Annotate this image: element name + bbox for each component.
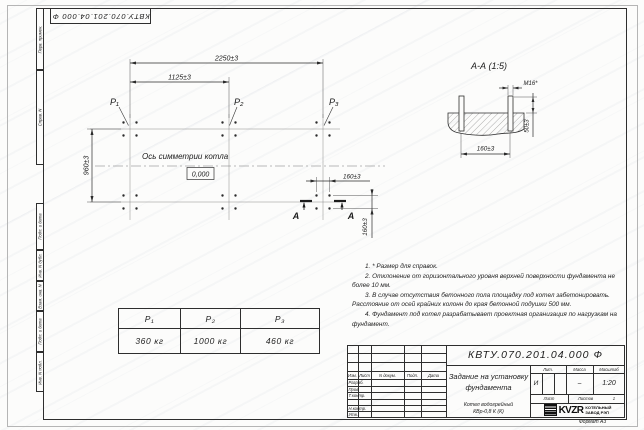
load-table-value-p1: 360 кг <box>119 329 181 353</box>
tb-org-cell: KVZR КОТЕЛЬНЫЙ ЗАВОД РЭП <box>530 403 625 417</box>
tb-sheets-cell: Листов 1 <box>568 394 625 403</box>
tb-col-data: Дата <box>421 371 446 379</box>
load-point-p2-label: P₂ <box>234 97 244 107</box>
tb-col-podp: Подп. <box>404 371 421 379</box>
technical-notes: 1. * Размер для справок. 2. Отклонение о… <box>352 262 629 329</box>
org-name: КОТЕЛЬНЫЙ ЗАВОД РЭП <box>585 405 611 415</box>
tb-col-izm: Изм. <box>347 371 358 379</box>
kvzr-logo-icon <box>544 404 557 416</box>
dim-bolt-spacing-h: 160±3 <box>343 174 361 181</box>
dimension-arrows <box>91 62 374 215</box>
bolt-thread-callout: М16* <box>524 81 539 87</box>
kvzr-logo-text: KVZR <box>559 405 584 416</box>
tb-col-list: Лист <box>358 371 371 379</box>
anchor-bolt-left <box>459 96 464 131</box>
tb-product-line1: Котел водогрейный <box>464 402 513 409</box>
tb-row-tkontr: Т.контр. <box>347 392 371 399</box>
anchor-bolt-dots <box>122 121 330 209</box>
tb-scale-header: Масштаб <box>593 365 625 373</box>
load-table-header-p1: P₁ <box>119 309 181 329</box>
tb-line <box>542 373 543 394</box>
load-table-value-p3: 460 кг <box>241 329 319 353</box>
tb-line <box>371 345 372 418</box>
tb-sheets-label: Листов <box>578 396 593 401</box>
elevation-value: 0,000 <box>192 172 210 179</box>
load-table-value-p2: 1000 кг <box>181 329 241 353</box>
section-aa-view: А-А (1:5) М16* 50±3 160±3 <box>448 61 538 158</box>
load-table: P₁ P₂ P₃ 360 кг 1000 кг 460 кг <box>118 308 320 354</box>
tb-row-razrab: Разраб. <box>347 379 371 386</box>
tb-sheets-value: 1 <box>613 396 615 401</box>
dimension-lines <box>92 63 372 238</box>
tb-sheet-label: Лист <box>530 394 568 403</box>
tb-line <box>347 362 446 363</box>
dim-depth: 960±3 <box>84 156 91 176</box>
note-1: 1. * Размер для справок. <box>352 262 629 272</box>
tb-scale-value: 1:20 <box>593 373 625 394</box>
section-letter-right: А <box>347 211 355 221</box>
tb-lit-value: И <box>530 373 542 394</box>
section-letter-left: А <box>292 211 300 221</box>
tb-col-ndoc: N докум. <box>371 371 404 379</box>
drawing-sheet: Перв. примен. Справ. N Подп. и дата Инв.… <box>0 0 644 430</box>
load-point-leaders <box>119 107 333 126</box>
note-4: 4. Фундамент под котел разрабатывает про… <box>352 310 629 329</box>
dim-bolt-pair-spacing: 160±3 <box>477 146 495 153</box>
tb-mass-header: Масса <box>566 365 593 373</box>
section-view-title: А-А (1:5) <box>470 61 507 71</box>
note-2: 2. Отклонение от горизонтального уровня … <box>352 272 629 291</box>
tb-row-utv: Утв. <box>347 411 371 418</box>
tb-lit-header: Лит. <box>530 365 566 373</box>
format-label: Формат А3 <box>560 419 625 425</box>
tb-line <box>404 345 405 418</box>
plan-view: P₁ P₂ P₃ <box>84 56 386 239</box>
tb-doc-number: КВТУ.070.201.04.000 Ф <box>447 345 624 365</box>
tb-line <box>347 353 446 354</box>
tb-mass-value: – <box>566 373 593 394</box>
note-3: 3. В случае отсутствия бетонного пола пл… <box>352 291 629 310</box>
axis-lines <box>90 114 340 220</box>
tb-line <box>554 373 555 394</box>
extension-lines <box>87 59 378 209</box>
load-point-p3-label: P₃ <box>329 97 339 107</box>
dim-half-width: 1125±3 <box>168 75 191 82</box>
tb-line <box>421 345 422 418</box>
dim-bolt-protrusion: 50±3 <box>525 119 531 133</box>
load-table-header-p2: P₂ <box>181 309 241 329</box>
dim-total-width: 2250±3 <box>214 56 238 63</box>
tb-product: Котел водогрейный КВр-0,8 К (К) <box>447 400 530 417</box>
tb-drawing-title: Задание на установку фундамента <box>447 366 530 399</box>
tb-line <box>347 399 446 400</box>
org-name-line2: ЗАВОД РЭП <box>585 410 611 415</box>
load-table-header-p3: P₃ <box>241 309 319 329</box>
dim-bolt-spacing-v: 160±3 <box>362 218 369 236</box>
tb-product-line2: КВр-0,8 К (К) <box>473 409 504 416</box>
symmetry-axis-label: Ось симметрии котла <box>142 152 229 161</box>
load-point-p1-label: P₁ <box>110 97 119 107</box>
anchor-bolt-right <box>508 96 513 131</box>
